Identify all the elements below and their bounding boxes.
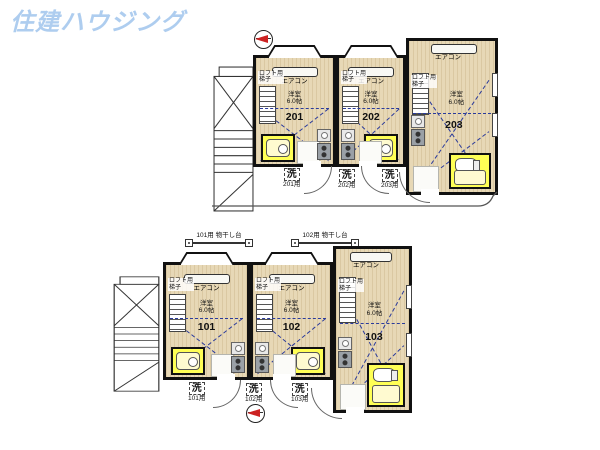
- wash-unit-label: 202用: [338, 182, 355, 190]
- loft-ladder: [169, 294, 186, 332]
- room-type-label: 洋室: [368, 302, 381, 310]
- room-size-label: 6.0帖: [367, 310, 383, 318]
- door-swing-arc-103: [311, 388, 342, 419]
- stove: [231, 356, 245, 373]
- air-conditioner: [431, 44, 477, 54]
- loft-ladder: [342, 86, 359, 124]
- air-conditioner: [350, 252, 392, 262]
- stove: [338, 351, 352, 368]
- unit-number: 203: [445, 119, 463, 131]
- kitchen-unit: [411, 115, 425, 146]
- wash-unit-label: 101用: [188, 395, 205, 403]
- room-label: 洋室 6.0帖: [287, 91, 303, 106]
- toilet: [373, 368, 395, 382]
- bath-figure: [308, 357, 318, 367]
- bath-figure: [188, 357, 198, 367]
- sink: [341, 129, 355, 142]
- bay-window: [179, 252, 235, 265]
- aircon-label: エアコン: [282, 78, 308, 85]
- drying-rack-label: 101用 物干し台: [186, 229, 252, 239]
- loft-edge-line: [340, 323, 405, 324]
- door-opening: [346, 407, 364, 414]
- bath-unit: [261, 134, 295, 162]
- drying-rack-end: [291, 239, 299, 247]
- aircon-label: エアコン: [353, 262, 379, 269]
- kitchen-unit: [231, 342, 245, 373]
- wash-unit-label: 201用: [283, 181, 300, 189]
- kitchen-unit: [338, 337, 352, 368]
- bath-unit: [367, 363, 405, 407]
- room-size-label: 6.0帖: [363, 98, 379, 106]
- sink: [317, 129, 331, 142]
- bath-figure: [278, 144, 288, 154]
- loft-ladder-label: ロフト用 梯子: [258, 71, 284, 84]
- loft-edge-line: [343, 108, 399, 109]
- stove: [317, 143, 331, 160]
- aircon-label: エアコン: [194, 285, 220, 292]
- kitchen-unit: [341, 129, 355, 160]
- loft-ladder-label: ロフト用 梯子: [338, 279, 364, 292]
- loft-ladder-label: ロフト用 梯子: [255, 278, 281, 291]
- floorplan-canvas: 住建ハウジング エアコン ロフト用 梯子: [0, 0, 600, 450]
- wash-unit-label: 102用: [245, 396, 262, 404]
- drying-rack-102: 102用 物干し台: [292, 229, 358, 244]
- loft-ladder-label: ロフト用 梯子: [168, 278, 194, 291]
- unit-202: エアコン ロフト用 梯子 洋室 6.0帖 202: [336, 55, 406, 167]
- aircon-label: エアコン: [435, 54, 461, 61]
- bay-window: [264, 252, 320, 265]
- compass-icon: [246, 404, 265, 423]
- loft-edge-line: [170, 318, 243, 319]
- bay-window: [343, 45, 399, 58]
- room-label: 洋室 6.0帖: [363, 91, 379, 106]
- stove: [341, 143, 355, 160]
- drying-rack-101: 101用 物干し台: [186, 229, 252, 244]
- room-label: 洋室 6.0帖: [199, 300, 215, 315]
- drying-rack-label: 102用 物干し台: [292, 229, 358, 239]
- sink: [411, 115, 425, 128]
- staircase-1f: [113, 276, 160, 392]
- unit-number: 101: [198, 321, 216, 333]
- loft-ladder-label-line2: 梯子: [412, 82, 436, 89]
- door-swing-arc-102: [270, 380, 298, 408]
- window: [492, 113, 498, 137]
- kitchen-unit: [317, 129, 331, 160]
- sink: [255, 342, 269, 355]
- stove: [255, 356, 269, 373]
- sink: [338, 337, 352, 350]
- compass-north-arrow: [247, 409, 260, 417]
- wash-label: 洗: [246, 383, 262, 396]
- aircon-label: エアコン: [279, 285, 305, 292]
- loft-ladder-label-line2: 梯子: [256, 285, 280, 292]
- kitchen-unit: [255, 342, 269, 373]
- bath-unit: [291, 347, 325, 375]
- loft-ladder-label: ロフト用 梯子: [341, 71, 367, 84]
- bay-window: [267, 45, 323, 58]
- bathtub: [454, 170, 486, 185]
- loft-ladder: [256, 294, 273, 332]
- compass-icon: [254, 30, 273, 49]
- room-label: 洋室 6.0帖: [367, 302, 383, 317]
- drying-rack-end: [245, 239, 253, 247]
- bath-unit: [449, 153, 491, 189]
- bath-unit: [171, 347, 205, 375]
- drying-rack-bar: [292, 242, 358, 244]
- unit-number: 102: [283, 321, 301, 333]
- washer-location-201: 洗 201用: [283, 168, 300, 189]
- walkway-boundary: [210, 190, 500, 210]
- compass-north-arrow: [255, 35, 268, 43]
- drying-rack-bar: [186, 242, 252, 244]
- drying-rack-end: [185, 239, 193, 247]
- wash-label: 洗: [339, 169, 355, 182]
- loft-edge-line: [413, 113, 491, 114]
- brand-logo: 住建ハウジング: [10, 2, 185, 37]
- wash-label: 洗: [284, 168, 300, 181]
- room-label: 洋室 6.0帖: [284, 300, 300, 315]
- sink: [231, 342, 245, 355]
- stove: [411, 129, 425, 146]
- room-size-label: 6.0帖: [284, 307, 300, 315]
- loft-ladder-label-line2: 梯子: [259, 77, 283, 84]
- room-type-label: 洋室: [364, 91, 377, 99]
- washer-location-202: 洗 202用: [338, 169, 355, 190]
- window: [406, 333, 412, 357]
- room-type-label: 洋室: [285, 300, 298, 308]
- unit-102: エアコン ロフト用 梯子 洋室 6.0帖 102: [250, 262, 333, 380]
- window: [406, 285, 412, 309]
- room-type-label: 洋室: [200, 300, 213, 308]
- bathtub: [372, 385, 400, 403]
- room-size-label: 6.0帖: [449, 99, 465, 107]
- unit-number: 103: [365, 331, 383, 343]
- loft-ladder-label-line2: 梯子: [169, 285, 193, 292]
- unit-101: エアコン ロフト用 梯子 洋室 6.0帖 101: [163, 262, 250, 380]
- door-swing-arc-101: [213, 380, 241, 408]
- loft-ladder-label-line2: 梯子: [342, 77, 366, 84]
- room-label: 洋室 6.0帖: [449, 91, 465, 106]
- loft-edge-line: [260, 108, 329, 109]
- room-size-label: 6.0帖: [199, 307, 215, 315]
- unit-201: エアコン ロフト用 梯子 洋室 6.0帖 201: [253, 55, 336, 167]
- loft-edge-line: [257, 318, 326, 319]
- room-size-label: 6.0帖: [287, 98, 303, 106]
- loft-ladder-label-line2: 梯子: [339, 286, 363, 293]
- wash-label: 洗: [189, 382, 205, 395]
- unit-number: 201: [286, 111, 304, 123]
- unit-number: 202: [362, 111, 380, 123]
- unit-103: エアコン ロフト用 梯子 洋室 6.0帖 103: [333, 246, 412, 413]
- washer-location-102: 洗 102用: [245, 383, 262, 404]
- room-type-label: 洋室: [288, 91, 301, 99]
- window: [492, 73, 498, 97]
- washer-location-101: 洗 101用: [188, 382, 205, 403]
- loft-ladder-label: ロフト用 梯子: [411, 75, 437, 88]
- loft-ladder: [259, 86, 276, 124]
- bath-figure: [381, 144, 391, 154]
- room-type-label: 洋室: [450, 91, 463, 99]
